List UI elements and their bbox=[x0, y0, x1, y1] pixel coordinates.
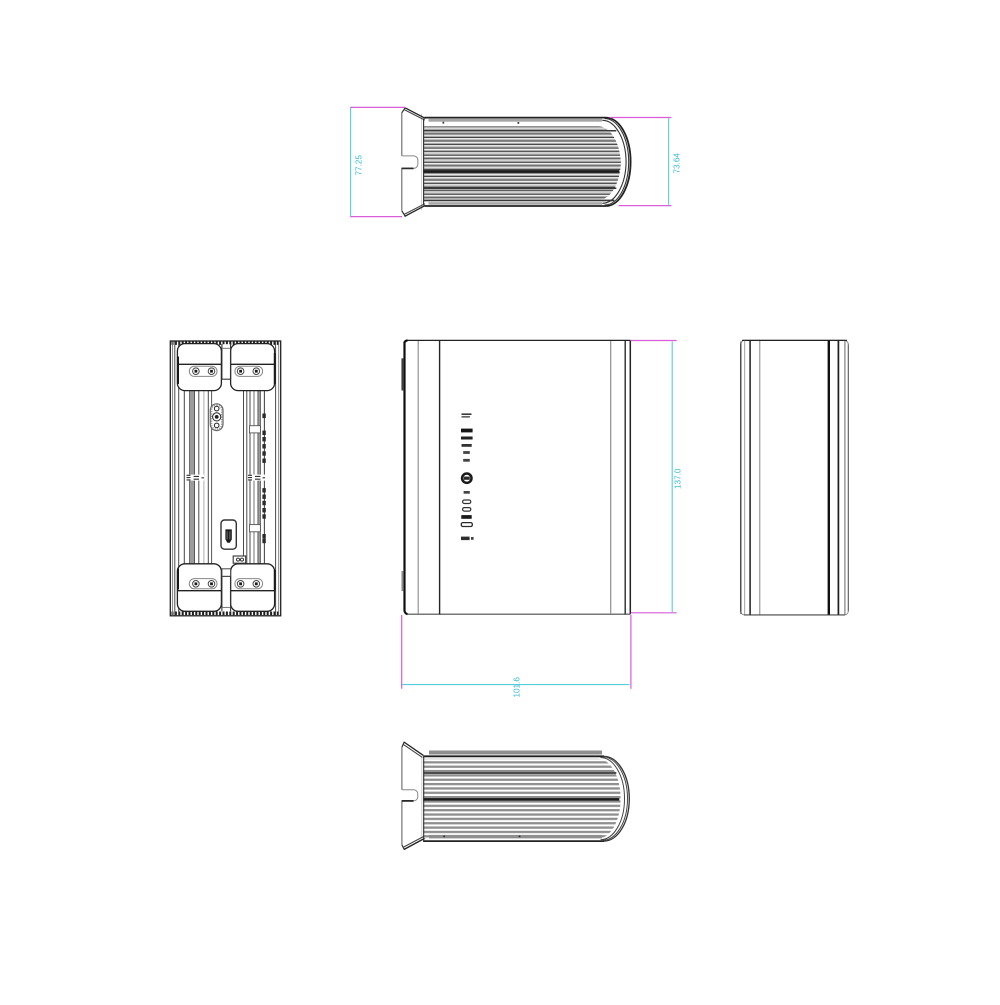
svg-text:77.25: 77.25 bbox=[355, 155, 364, 176]
svg-text:101.6: 101.6 bbox=[513, 677, 522, 698]
svg-text:137.0: 137.0 bbox=[674, 468, 683, 489]
svg-text:73.64: 73.64 bbox=[673, 153, 682, 174]
